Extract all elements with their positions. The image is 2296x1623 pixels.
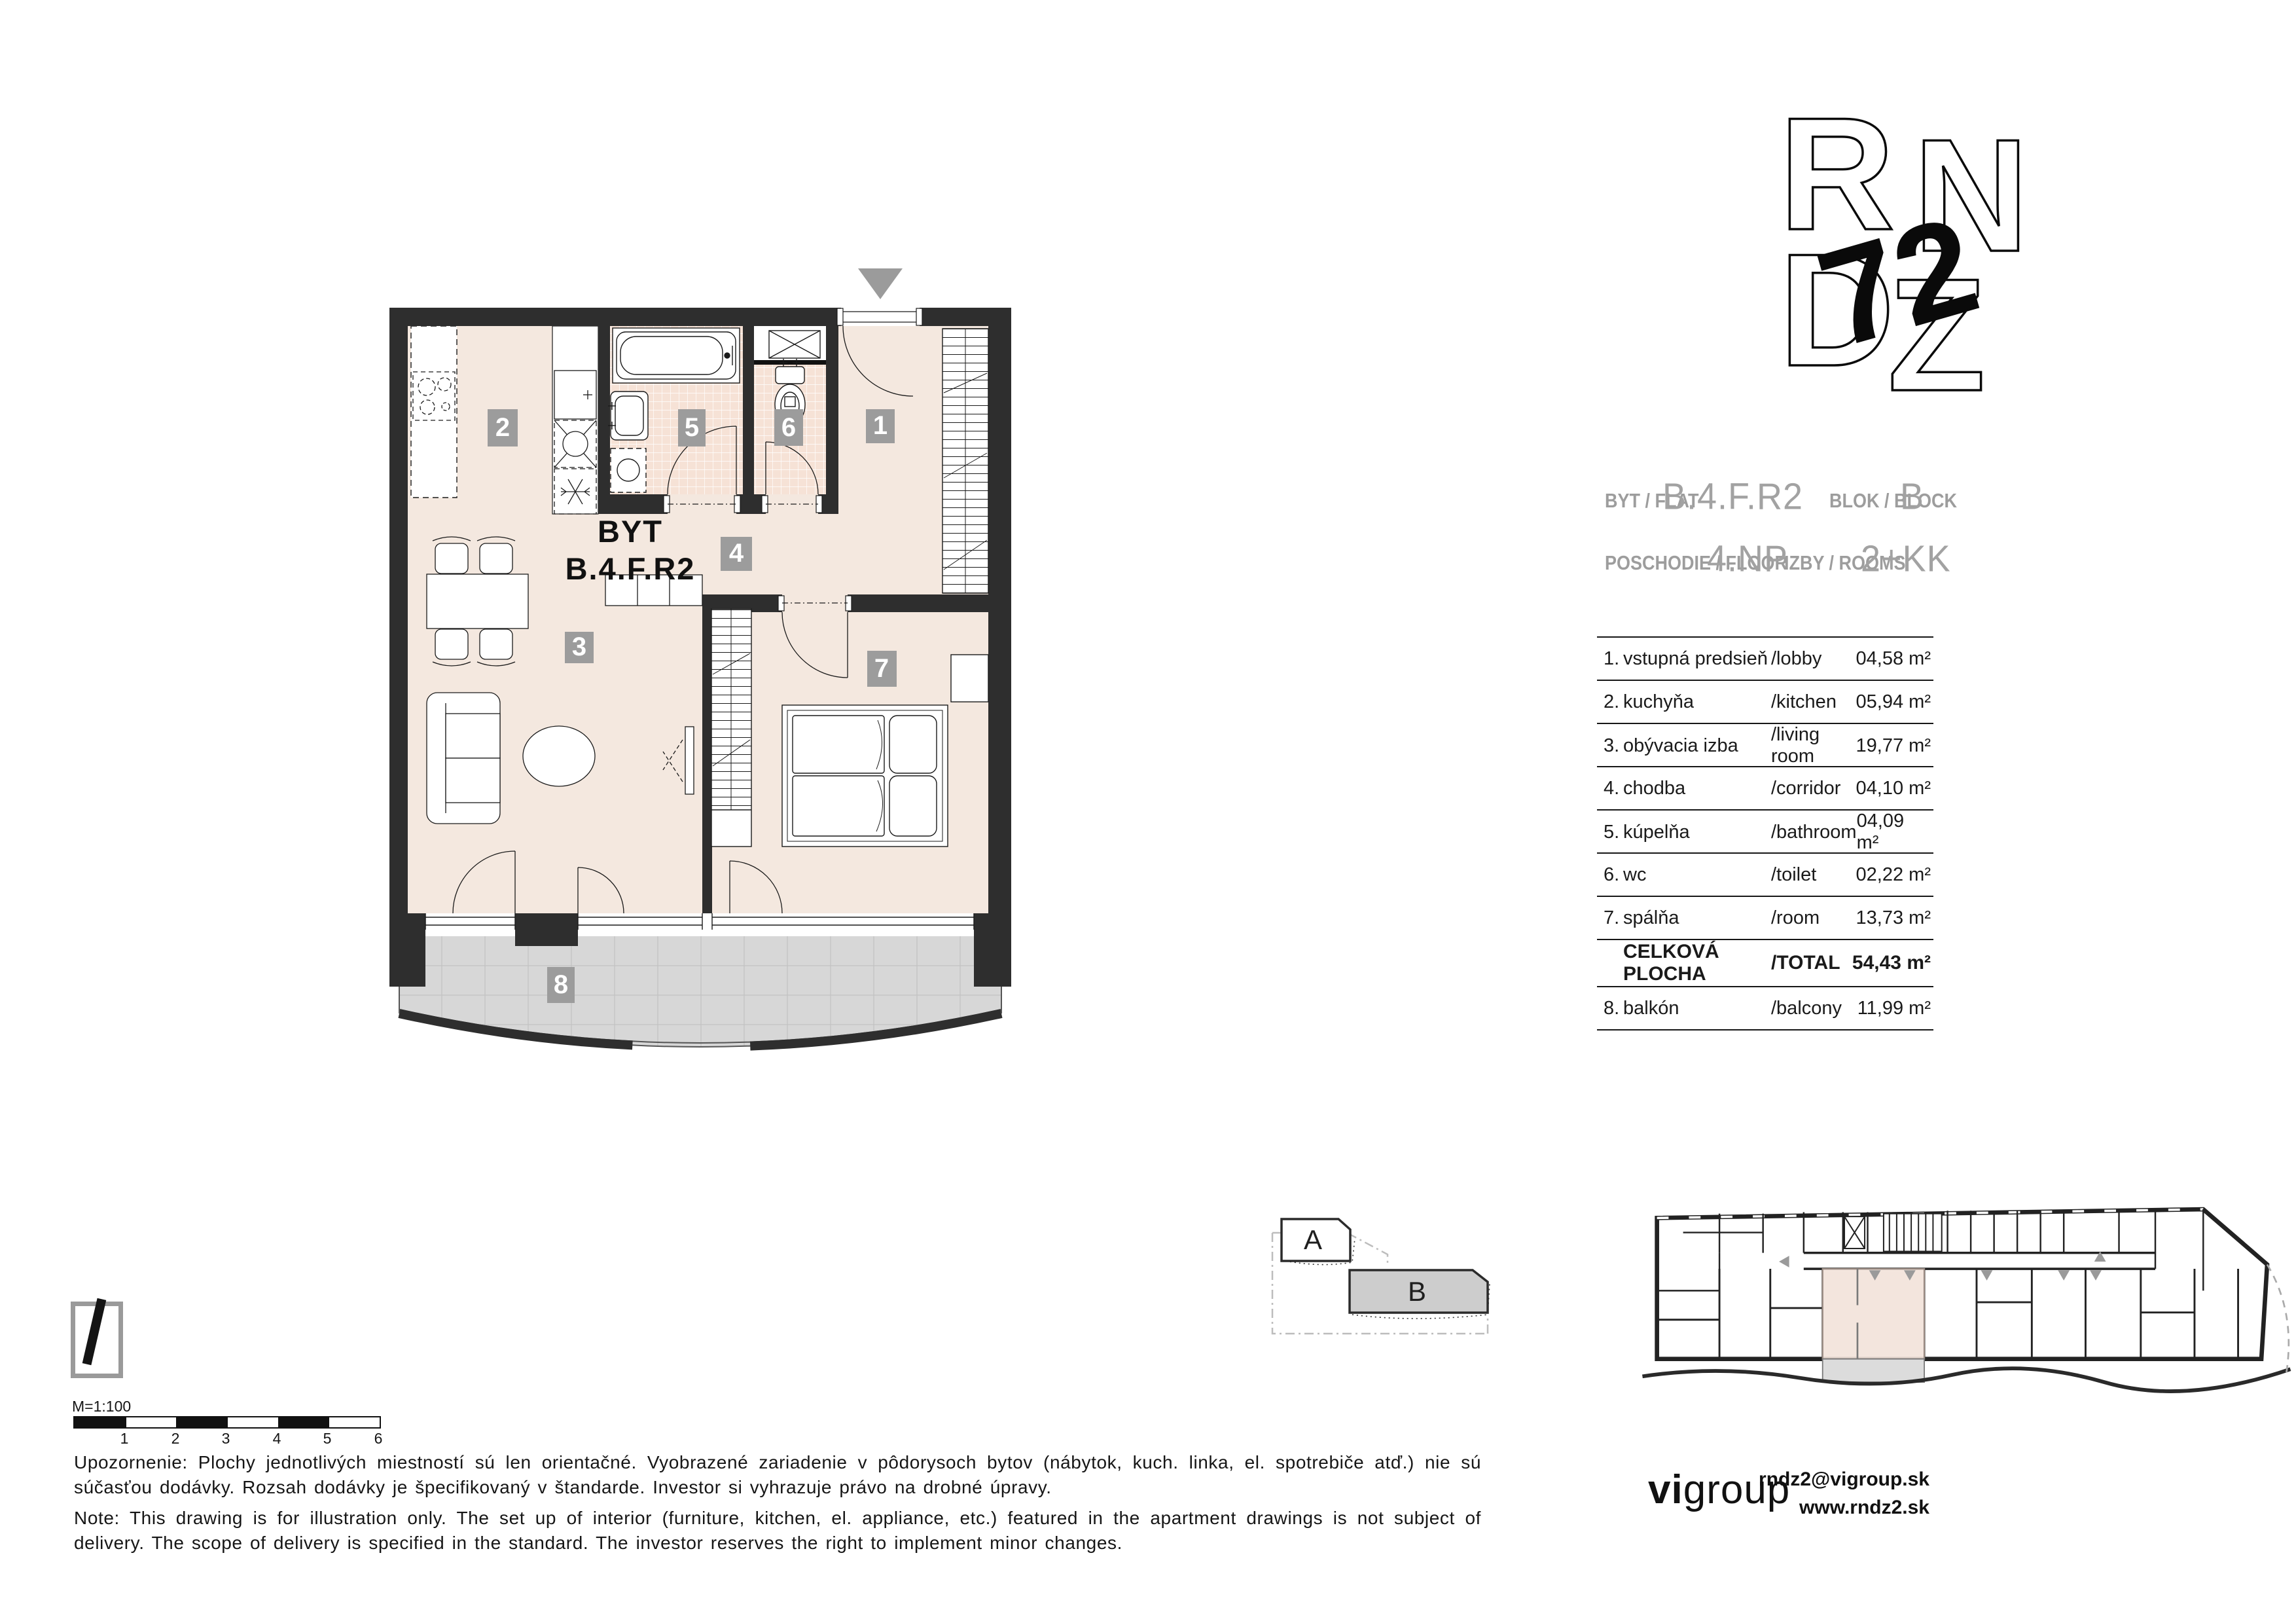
scale-tick: 2 — [171, 1430, 180, 1448]
table-row: 7.spálňa/room13,73 m² — [1597, 896, 1933, 939]
room-number: 5. — [1597, 822, 1623, 843]
rooms-value: 2+KK — [1861, 538, 1951, 580]
double-bed — [782, 705, 948, 847]
room-area: 02,22 m² — [1856, 864, 1933, 886]
room-area: 13,73 m² — [1856, 907, 1933, 929]
washbasin-icon — [608, 392, 648, 440]
room-name-en: /corridor — [1771, 778, 1856, 799]
room-number: 3. — [1597, 735, 1623, 757]
room-name-sk: CELKOVÁ PLOCHA — [1623, 941, 1771, 985]
scale-segment — [278, 1417, 329, 1427]
scale-bar — [73, 1416, 381, 1429]
svg-text:8: 8 — [554, 970, 568, 999]
room-name-en: /kitchen — [1771, 691, 1856, 713]
scale-tick: 6 — [374, 1430, 383, 1448]
entrance-threshold — [841, 312, 920, 322]
room-number: 8. — [1597, 998, 1623, 1019]
room-name-sk: balkón — [1623, 998, 1771, 1019]
table-row: 4.chodba/corridor04,10 m² — [1597, 766, 1933, 809]
disclaimer-sk: Upozornenie: Plochy jednotlivých miestno… — [74, 1450, 1481, 1500]
room-area: 04,58 m² — [1856, 648, 1933, 670]
scale-tick: 1 — [120, 1430, 129, 1448]
scale-label: M=1:100 — [72, 1398, 131, 1415]
room-name-en: /bathroom — [1771, 822, 1857, 843]
dryer-icon — [769, 331, 820, 358]
block-label: BLOK / BLOCK — [1829, 490, 1957, 513]
scale-segment — [176, 1417, 226, 1427]
block-a-label: A — [1304, 1224, 1322, 1255]
site-locator: A B — [1270, 1198, 1505, 1342]
contact-web: www.rndz2.sk — [1700, 1493, 1929, 1522]
sofa — [427, 693, 500, 824]
kitchen-counter — [411, 326, 457, 498]
building-overview — [1640, 1203, 2296, 1400]
room-name-en: /living room — [1771, 724, 1856, 767]
scale-tick: 3 — [222, 1430, 230, 1448]
room-number: 6. — [1597, 864, 1623, 886]
scale-segment — [75, 1417, 125, 1427]
room-name-en: /room — [1771, 907, 1856, 929]
rooms-table: 1.vstupná predsieň/lobby04,58 m²2.kuchyň… — [1597, 636, 1933, 1030]
room-name-sk: kúpelňa — [1623, 822, 1771, 843]
room-area: 05,94 m² — [1856, 691, 1933, 713]
scale-tick: 5 — [323, 1430, 332, 1448]
room-area: 19,77 m² — [1856, 735, 1933, 757]
contact-email: rndz2@vigroup.sk — [1700, 1465, 1929, 1493]
block-value: B — [1900, 475, 1924, 518]
table-row-total: CELKOVÁ PLOCHA/TOTAL54,43 m² — [1597, 939, 1933, 986]
contact-block: rndz2@vigroup.sk www.rndz2.sk — [1700, 1465, 1929, 1522]
room-area: 04,10 m² — [1856, 778, 1933, 799]
table-row: 6.wc/toilet02,22 m² — [1597, 852, 1933, 896]
north-needle-icon — [82, 1298, 107, 1366]
windows — [425, 913, 974, 930]
svg-text:7: 7 — [874, 654, 889, 683]
room-number: 1. — [1597, 648, 1623, 670]
coffee-table — [523, 726, 595, 786]
bathtub-icon — [613, 328, 740, 383]
room-number: 2. — [1597, 691, 1623, 713]
room-name-sk: wc — [1623, 864, 1771, 886]
disclaimer-en: Note: This drawing is for illustration o… — [74, 1506, 1481, 1556]
room-number: 7. — [1597, 907, 1623, 929]
highlighted-unit — [1823, 1269, 1924, 1359]
table-row: 5.kúpelňa/bathroom04,09 m² — [1597, 809, 1933, 852]
room-name-sk: spálňa — [1623, 907, 1771, 929]
room-area: 54,43 m² — [1852, 952, 1933, 974]
room-name-en: /balcony — [1771, 998, 1857, 1019]
svg-text:2: 2 — [495, 413, 510, 442]
floor-value: 4.NP — [1707, 538, 1788, 580]
flat-value: B.4.F.R2 — [1662, 475, 1803, 518]
bedroom-wardrobe — [711, 609, 751, 847]
room-name-sk: kuchyňa — [1623, 691, 1771, 713]
floorplan-sheet: 1 2 3 4 5 6 7 8 BYT B.4.F.R2 R N D Z 72 … — [0, 0, 2296, 1623]
svg-text:5: 5 — [685, 413, 699, 442]
highlighted-unit-balcony — [1823, 1359, 1924, 1383]
room-name-sk: chodba — [1623, 778, 1771, 799]
table-row: 1.vstupná predsieň/lobby04,58 m² — [1597, 636, 1933, 680]
room-area: 11,99 m² — [1857, 998, 1933, 1019]
table-row: 2.kuchyňa/kitchen05,94 m² — [1597, 680, 1933, 723]
room-name-en: /toilet — [1771, 864, 1856, 886]
scale-segment — [328, 1417, 380, 1427]
scale-segment — [125, 1417, 177, 1427]
svg-text:4: 4 — [729, 539, 744, 568]
balcony — [389, 935, 1011, 1067]
table-row: 8.balkón/balcony11,99 m² — [1597, 986, 1933, 1030]
block-b-label: B — [1408, 1276, 1426, 1307]
svg-text:3: 3 — [572, 632, 586, 661]
room-number: 4. — [1597, 778, 1623, 799]
scale-segment — [226, 1417, 278, 1427]
north-symbol — [71, 1302, 123, 1378]
room-name-sk: obývacia izba — [1623, 735, 1771, 757]
room-area: 04,09 m² — [1857, 811, 1933, 854]
svg-text:6: 6 — [781, 413, 796, 442]
room-name-en: /TOTAL — [1771, 952, 1852, 974]
scale-tick: 4 — [273, 1430, 281, 1448]
lobby-wardrobe — [942, 329, 988, 593]
terrain-line — [1642, 1368, 2290, 1391]
rndz-logo: R N D Z 72 — [1761, 90, 2042, 405]
entrance-arrow-icon — [858, 268, 903, 299]
room-name-sk: vstupná predsieň — [1623, 648, 1771, 670]
apartment-floorplan: 1 2 3 4 5 6 7 8 BYT B.4.F.R2 — [389, 308, 1011, 1067]
washing-machine-icon — [611, 448, 646, 492]
svg-text:B.4.F.R2: B.4.F.R2 — [565, 551, 696, 586]
svg-text:BYT: BYT — [598, 514, 663, 549]
room-name-en: /lobby — [1771, 648, 1856, 670]
table-row: 3.obývacia izba/living room19,77 m² — [1597, 723, 1933, 766]
nightstand — [951, 655, 988, 702]
svg-text:1: 1 — [873, 411, 888, 440]
